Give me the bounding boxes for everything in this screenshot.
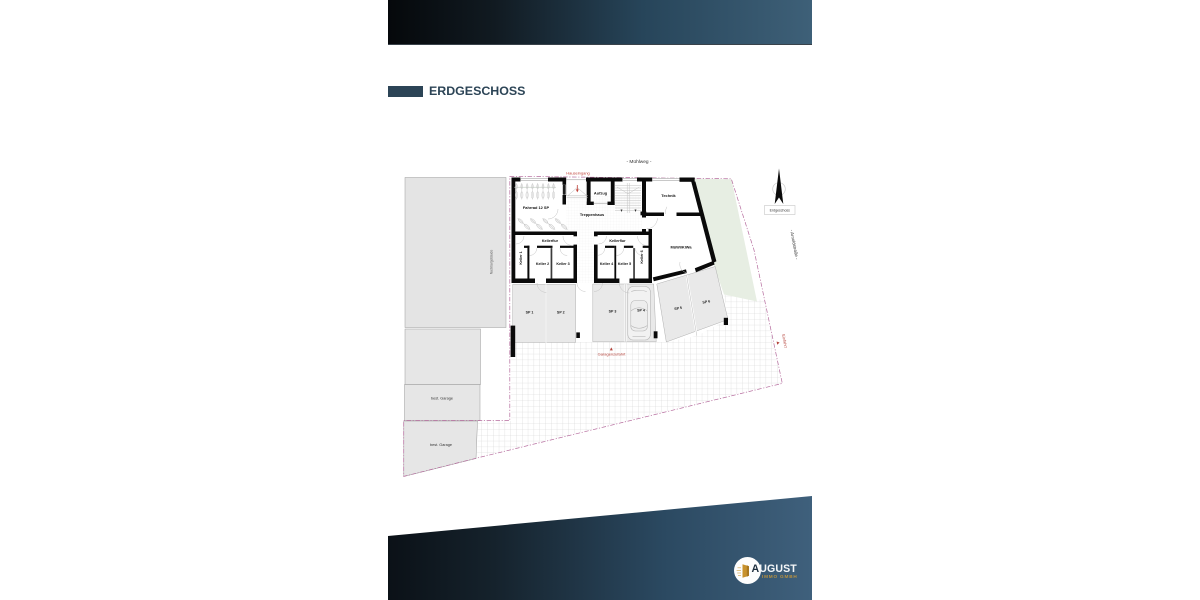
svg-text:SP 2: SP 2 [557, 311, 565, 315]
svg-text:SP 4: SP 4 [637, 309, 645, 313]
svg-text:Garagenzufahrt: Garagenzufahrt [598, 352, 627, 357]
svg-text:best. Garage: best. Garage [431, 397, 453, 401]
svg-text:Keller 5: Keller 5 [618, 262, 631, 266]
svg-text:- Arnoldstraße -: - Arnoldstraße - [789, 229, 800, 260]
svg-text:Einfahrt: Einfahrt [781, 334, 789, 349]
svg-text:SP 1: SP 1 [526, 311, 534, 315]
svg-text:- Mühlweg -: - Mühlweg - [626, 159, 651, 165]
svg-text:Keller 1: Keller 1 [519, 251, 523, 264]
svg-text:Keller 4: Keller 4 [600, 262, 614, 266]
svg-text:Kellerflur: Kellerflur [542, 239, 559, 243]
svg-text:Keller 3: Keller 3 [556, 262, 569, 266]
svg-text:best. Garage: best. Garage [430, 443, 452, 447]
svg-text:Keller 2: Keller 2 [536, 262, 549, 266]
svg-text:MüWi/KiWa: MüWi/KiWa [671, 245, 693, 250]
svg-text:Hauseingang: Hauseingang [566, 171, 590, 176]
svg-text:Erdgeschoss: Erdgeschoss [770, 209, 790, 213]
svg-text:SP 3: SP 3 [609, 310, 617, 314]
svg-text:Nachbargebäude: Nachbargebäude [490, 250, 494, 275]
svg-text:Treppenhaus: Treppenhaus [580, 212, 604, 217]
svg-text:Keller 6: Keller 6 [640, 250, 644, 263]
svg-text:Fahrrad 12 SP: Fahrrad 12 SP [523, 205, 550, 210]
svg-text:Kellerflur: Kellerflur [609, 239, 626, 243]
svg-text:Technik: Technik [661, 193, 676, 198]
svg-text:Aufzug: Aufzug [594, 191, 608, 196]
